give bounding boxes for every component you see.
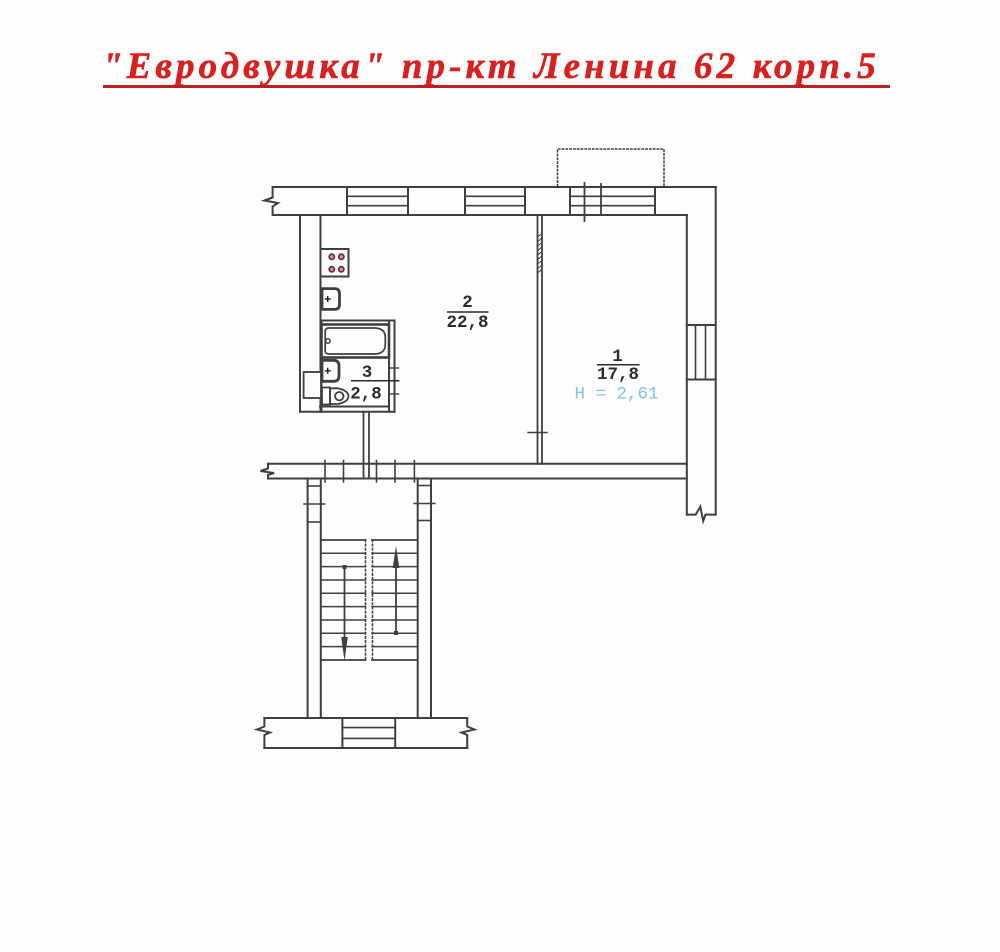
svg-text:H = 2,61: H = 2,61 [574, 385, 658, 405]
svg-text:2: 2 [462, 293, 473, 313]
svg-text:2,8: 2,8 [350, 385, 382, 405]
svg-text:1: 1 [612, 347, 623, 367]
svg-text:22,8: 22,8 [446, 313, 488, 333]
svg-text:17,8: 17,8 [597, 365, 639, 385]
